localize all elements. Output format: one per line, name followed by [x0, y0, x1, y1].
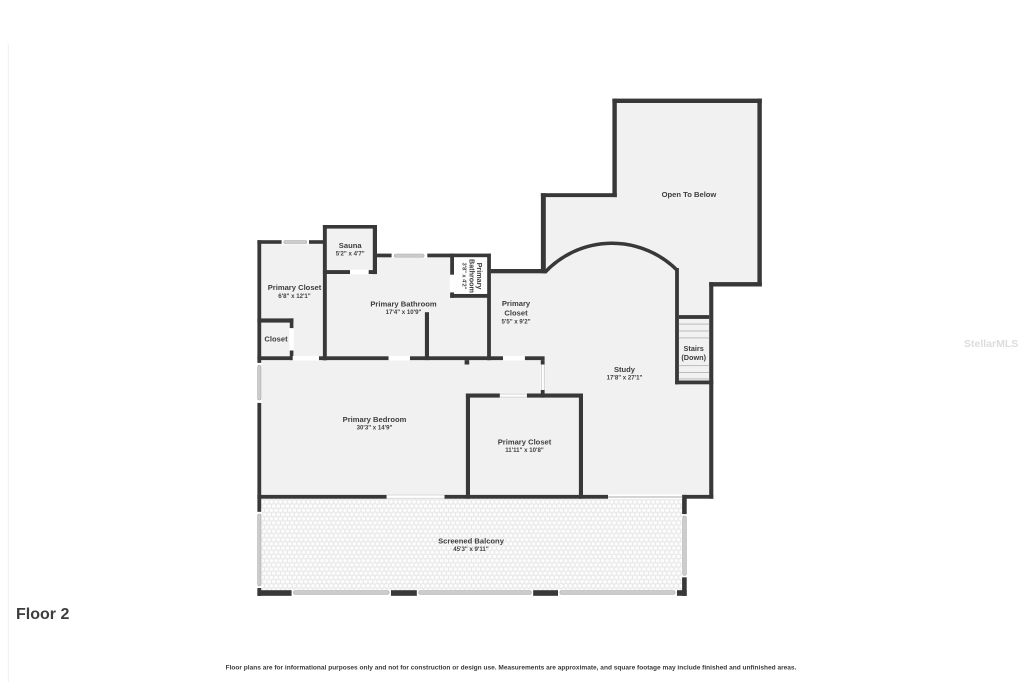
svg-text:17'4" x 10'9": 17'4" x 10'9" — [386, 309, 422, 316]
svg-text:Stairs: Stairs — [684, 344, 704, 353]
svg-text:Primary Bedroom: Primary Bedroom — [343, 415, 407, 424]
svg-text:Primary Closet: Primary Closet — [498, 438, 552, 447]
svg-text:5'5" x 9'2": 5'5" x 9'2" — [501, 319, 530, 326]
svg-text:Closet: Closet — [264, 334, 288, 343]
svg-text:Bathroom: Bathroom — [467, 259, 476, 293]
svg-text:6'8" x 12'1": 6'8" x 12'1" — [278, 293, 311, 300]
svg-text:45'3" x 9'11": 45'3" x 9'11" — [453, 546, 489, 553]
svg-text:Sauna: Sauna — [339, 241, 363, 250]
svg-text:Primary Bathroom: Primary Bathroom — [370, 299, 437, 308]
svg-text:17'8" x 27'1": 17'8" x 27'1" — [607, 374, 643, 381]
svg-text:Floor plans are for informatio: Floor plans are for informational purpos… — [226, 665, 797, 672]
svg-text:3'8" x 4'2": 3'8" x 4'2" — [460, 263, 466, 290]
svg-text:11'11" x 10'8": 11'11" x 10'8" — [505, 447, 544, 454]
svg-text:Screened Balcony: Screened Balcony — [438, 537, 505, 546]
svg-text:(Down): (Down) — [681, 353, 706, 362]
svg-text:Closet: Closet — [504, 308, 528, 317]
svg-text:30'3" x 14'9": 30'3" x 14'9" — [357, 425, 393, 432]
svg-text:Primary: Primary — [502, 299, 531, 308]
svg-text:Primary Closet: Primary Closet — [268, 283, 322, 292]
svg-text:StellarMLS: StellarMLS — [964, 338, 1018, 350]
svg-text:Open To Below: Open To Below — [662, 190, 717, 199]
svg-text:Floor 2: Floor 2 — [16, 606, 69, 623]
svg-text:5'2" x 4'7": 5'2" x 4'7" — [336, 251, 365, 258]
svg-text:Study: Study — [614, 365, 636, 374]
